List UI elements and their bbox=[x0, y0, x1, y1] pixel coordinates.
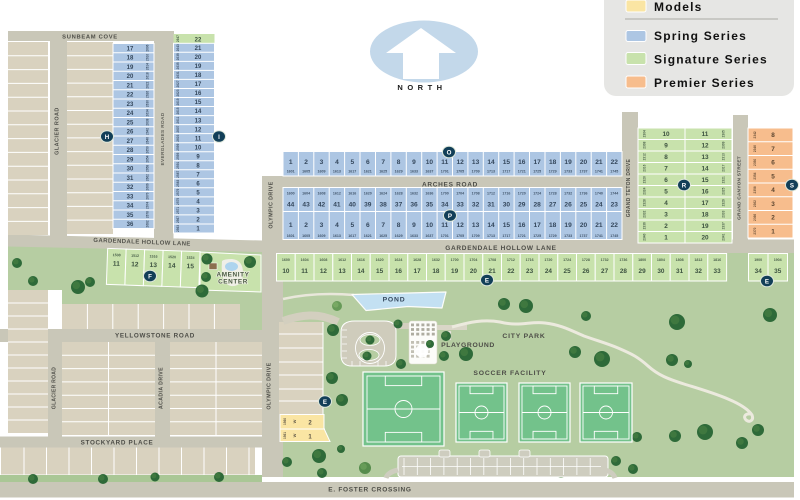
svg-text:1745: 1745 bbox=[610, 234, 618, 238]
svg-text:1713: 1713 bbox=[487, 234, 495, 238]
svg-text:2316: 2316 bbox=[643, 164, 647, 171]
svg-text:1800: 1800 bbox=[638, 258, 646, 262]
svg-text:1733: 1733 bbox=[564, 234, 572, 238]
svg-text:1720: 1720 bbox=[518, 192, 526, 196]
svg-text:10: 10 bbox=[195, 145, 202, 151]
svg-text:1708: 1708 bbox=[488, 258, 496, 262]
svg-text:1512: 1512 bbox=[131, 254, 139, 258]
svg-text:STOCKYARD PLACE: STOCKYARD PLACE bbox=[81, 440, 154, 447]
svg-text:1720: 1720 bbox=[544, 258, 552, 262]
svg-text:21: 21 bbox=[595, 222, 603, 229]
svg-text:OLYMPIC DRIVE: OLYMPIC DRIVE bbox=[267, 362, 273, 409]
svg-text:1609: 1609 bbox=[318, 234, 326, 238]
svg-text:1616: 1616 bbox=[357, 258, 365, 262]
svg-text:YELLOWSTONE ROAD: YELLOWSTONE ROAD bbox=[115, 333, 195, 340]
svg-text:Signature Series: Signature Series bbox=[654, 53, 768, 67]
svg-text:1508: 1508 bbox=[113, 253, 121, 257]
svg-text:14: 14 bbox=[701, 166, 709, 173]
svg-text:36: 36 bbox=[127, 222, 134, 228]
svg-text:2575: 2575 bbox=[176, 198, 180, 205]
svg-text:2366: 2366 bbox=[753, 214, 757, 221]
svg-text:1561: 1561 bbox=[283, 432, 287, 439]
svg-text:19: 19 bbox=[564, 222, 572, 229]
svg-text:20: 20 bbox=[470, 268, 478, 275]
svg-text:21: 21 bbox=[595, 159, 603, 166]
svg-text:14: 14 bbox=[168, 263, 176, 270]
svg-text:24: 24 bbox=[545, 268, 553, 275]
svg-text:1704: 1704 bbox=[456, 192, 464, 196]
svg-text:Models: Models bbox=[654, 0, 703, 14]
svg-text:34: 34 bbox=[127, 204, 134, 210]
svg-text:10: 10 bbox=[426, 222, 434, 229]
svg-text:1701: 1701 bbox=[441, 170, 449, 174]
svg-text:Premier Series: Premier Series bbox=[654, 76, 755, 90]
svg-text:1724: 1724 bbox=[563, 258, 571, 262]
svg-text:2304: 2304 bbox=[643, 130, 647, 137]
svg-text:POND: POND bbox=[383, 297, 406, 304]
svg-text:20: 20 bbox=[127, 74, 134, 80]
svg-text:12: 12 bbox=[457, 159, 465, 166]
svg-text:27: 27 bbox=[601, 268, 609, 275]
svg-text:1604: 1604 bbox=[301, 258, 309, 262]
svg-text:33: 33 bbox=[457, 202, 465, 209]
svg-text:2567: 2567 bbox=[176, 216, 180, 223]
svg-text:8: 8 bbox=[397, 159, 401, 166]
svg-text:2635: 2635 bbox=[176, 62, 180, 69]
svg-text:1816: 1816 bbox=[713, 258, 721, 262]
svg-text:1700: 1700 bbox=[451, 258, 459, 262]
svg-text:1609: 1609 bbox=[318, 170, 326, 174]
svg-text:2308: 2308 bbox=[643, 141, 647, 148]
svg-text:15: 15 bbox=[701, 177, 709, 184]
svg-text:2587: 2587 bbox=[176, 171, 180, 178]
svg-text:1636: 1636 bbox=[425, 192, 433, 196]
svg-text:24: 24 bbox=[127, 111, 134, 117]
svg-text:2595: 2595 bbox=[176, 152, 180, 159]
svg-text:1708: 1708 bbox=[472, 192, 480, 196]
svg-text:Spring Series: Spring Series bbox=[654, 29, 747, 43]
svg-text:40: 40 bbox=[349, 202, 357, 209]
svg-text:1733: 1733 bbox=[564, 170, 572, 174]
svg-text:1613: 1613 bbox=[333, 234, 341, 238]
svg-text:1612: 1612 bbox=[333, 192, 341, 196]
svg-text:2317: 2317 bbox=[722, 164, 726, 171]
svg-text:1629: 1629 bbox=[395, 170, 403, 174]
svg-text:7: 7 bbox=[381, 159, 385, 166]
svg-text:17: 17 bbox=[414, 268, 422, 275]
svg-text:SUNBEAM COVE: SUNBEAM COVE bbox=[62, 35, 118, 41]
svg-text:W: W bbox=[292, 433, 297, 437]
svg-text:1601: 1601 bbox=[287, 170, 295, 174]
svg-text:14: 14 bbox=[357, 268, 365, 275]
svg-text:2340: 2340 bbox=[643, 233, 647, 240]
svg-text:15: 15 bbox=[195, 100, 202, 106]
svg-text:23: 23 bbox=[127, 102, 134, 108]
svg-text:2333: 2333 bbox=[722, 210, 726, 217]
svg-text:2639: 2639 bbox=[176, 53, 180, 60]
svg-text:20: 20 bbox=[195, 55, 202, 61]
svg-text:1601: 1601 bbox=[287, 234, 295, 238]
svg-text:43: 43 bbox=[302, 202, 310, 209]
svg-text:1716: 1716 bbox=[502, 192, 510, 196]
svg-text:9: 9 bbox=[664, 143, 668, 150]
svg-text:2626: 2626 bbox=[146, 91, 150, 98]
svg-text:22: 22 bbox=[127, 93, 134, 99]
svg-text:1628: 1628 bbox=[395, 192, 403, 196]
svg-text:29: 29 bbox=[639, 268, 647, 275]
svg-text:P: P bbox=[448, 213, 452, 220]
svg-text:1804: 1804 bbox=[657, 258, 665, 262]
svg-text:2591: 2591 bbox=[176, 162, 180, 169]
svg-text:2658: 2658 bbox=[146, 165, 150, 172]
svg-text:1620: 1620 bbox=[364, 192, 372, 196]
svg-text:20: 20 bbox=[580, 222, 588, 229]
svg-text:24: 24 bbox=[595, 202, 603, 209]
svg-text:22: 22 bbox=[611, 159, 619, 166]
svg-text:18: 18 bbox=[701, 212, 709, 219]
svg-text:35: 35 bbox=[774, 268, 782, 275]
svg-text:S: S bbox=[790, 182, 794, 189]
svg-text:35: 35 bbox=[127, 213, 134, 219]
svg-text:18: 18 bbox=[195, 73, 202, 79]
svg-text:14: 14 bbox=[487, 222, 495, 229]
svg-text:35: 35 bbox=[426, 202, 434, 209]
svg-text:1613: 1613 bbox=[333, 170, 341, 174]
svg-text:29: 29 bbox=[127, 157, 134, 163]
svg-text:W: W bbox=[292, 419, 297, 423]
svg-text:2631: 2631 bbox=[176, 71, 180, 78]
svg-text:E. FOSTER CROSSING: E. FOSTER CROSSING bbox=[328, 487, 411, 494]
svg-text:34: 34 bbox=[755, 268, 763, 275]
svg-text:2614: 2614 bbox=[146, 63, 150, 70]
svg-text:1600: 1600 bbox=[287, 192, 295, 196]
svg-text:11: 11 bbox=[441, 222, 448, 229]
svg-text:1604: 1604 bbox=[302, 192, 310, 196]
svg-text:25: 25 bbox=[580, 202, 588, 209]
svg-text:2599: 2599 bbox=[176, 143, 180, 150]
svg-text:2328: 2328 bbox=[643, 199, 647, 206]
svg-text:CITY PARK: CITY PARK bbox=[502, 333, 545, 340]
svg-text:2630: 2630 bbox=[146, 100, 150, 107]
svg-text:29: 29 bbox=[518, 202, 526, 209]
svg-text:11: 11 bbox=[702, 131, 709, 138]
svg-text:31: 31 bbox=[676, 268, 684, 275]
svg-text:18: 18 bbox=[127, 56, 134, 62]
svg-text:27: 27 bbox=[549, 202, 557, 209]
svg-text:CENTER: CENTER bbox=[218, 279, 248, 286]
svg-text:1600: 1600 bbox=[282, 258, 290, 262]
svg-text:1712: 1712 bbox=[507, 258, 515, 262]
svg-text:1620: 1620 bbox=[376, 258, 384, 262]
svg-text:2324: 2324 bbox=[643, 187, 647, 194]
svg-text:1729: 1729 bbox=[549, 170, 557, 174]
svg-text:11: 11 bbox=[113, 261, 121, 268]
svg-text:2350: 2350 bbox=[753, 159, 757, 166]
svg-text:1724: 1724 bbox=[533, 192, 541, 196]
svg-text:7: 7 bbox=[664, 166, 668, 173]
svg-text:R: R bbox=[682, 182, 687, 189]
svg-text:13: 13 bbox=[701, 154, 709, 161]
svg-text:13: 13 bbox=[472, 222, 480, 229]
svg-text:3: 3 bbox=[320, 159, 324, 166]
svg-text:GRAND TETON DRIVE: GRAND TETON DRIVE bbox=[626, 158, 632, 217]
svg-text:18: 18 bbox=[549, 159, 557, 166]
svg-text:15: 15 bbox=[503, 222, 511, 229]
svg-text:31: 31 bbox=[487, 202, 495, 209]
svg-text:GLACIER ROAD: GLACIER ROAD bbox=[52, 367, 58, 409]
svg-text:2370: 2370 bbox=[753, 227, 757, 234]
svg-text:1625: 1625 bbox=[379, 234, 387, 238]
svg-text:15: 15 bbox=[186, 263, 194, 270]
svg-text:EVERGLADES ROAD: EVERGLADES ROAD bbox=[160, 112, 166, 165]
svg-text:19: 19 bbox=[701, 223, 709, 230]
svg-text:1736: 1736 bbox=[619, 258, 627, 262]
svg-text:1520: 1520 bbox=[168, 255, 176, 259]
svg-text:1704: 1704 bbox=[469, 258, 477, 262]
svg-text:16: 16 bbox=[395, 268, 403, 275]
svg-text:3: 3 bbox=[771, 201, 775, 208]
svg-text:2618: 2618 bbox=[146, 72, 150, 79]
svg-text:15: 15 bbox=[376, 268, 384, 275]
svg-text:10: 10 bbox=[426, 159, 434, 166]
svg-text:17: 17 bbox=[534, 222, 542, 229]
svg-text:6: 6 bbox=[771, 160, 775, 167]
svg-text:E: E bbox=[323, 399, 327, 406]
svg-text:H: H bbox=[105, 134, 110, 141]
svg-text:AMENITY: AMENITY bbox=[217, 272, 250, 279]
svg-text:2313: 2313 bbox=[722, 153, 726, 160]
svg-text:2329: 2329 bbox=[722, 199, 726, 206]
svg-text:21: 21 bbox=[489, 268, 497, 275]
svg-text:37: 37 bbox=[395, 202, 403, 209]
svg-text:27: 27 bbox=[127, 139, 134, 145]
svg-text:1524: 1524 bbox=[187, 256, 195, 260]
svg-text:31: 31 bbox=[127, 176, 134, 182]
svg-text:1740: 1740 bbox=[595, 192, 603, 196]
svg-text:1900: 1900 bbox=[754, 258, 762, 262]
svg-text:4: 4 bbox=[335, 222, 339, 229]
svg-text:1605: 1605 bbox=[302, 234, 310, 238]
svg-text:1560: 1560 bbox=[283, 418, 287, 425]
svg-text:7: 7 bbox=[381, 222, 385, 229]
svg-text:2642: 2642 bbox=[146, 128, 150, 135]
svg-text:23: 23 bbox=[611, 202, 619, 209]
svg-text:2332: 2332 bbox=[643, 210, 647, 217]
svg-text:1: 1 bbox=[289, 222, 293, 229]
svg-text:2606: 2606 bbox=[146, 44, 150, 51]
svg-text:2627: 2627 bbox=[176, 80, 180, 87]
svg-text:7: 7 bbox=[771, 146, 775, 153]
svg-text:8: 8 bbox=[771, 132, 775, 139]
svg-text:14: 14 bbox=[195, 109, 202, 115]
svg-text:30: 30 bbox=[503, 202, 511, 209]
svg-text:19: 19 bbox=[127, 65, 134, 71]
svg-text:3: 3 bbox=[320, 222, 324, 229]
svg-text:2611: 2611 bbox=[176, 116, 180, 123]
svg-text:12: 12 bbox=[195, 127, 202, 133]
svg-text:2354: 2354 bbox=[753, 172, 757, 179]
svg-text:32: 32 bbox=[127, 185, 134, 191]
svg-text:22: 22 bbox=[195, 38, 202, 44]
svg-text:22: 22 bbox=[507, 268, 515, 275]
svg-text:8: 8 bbox=[397, 222, 401, 229]
svg-text:1705: 1705 bbox=[456, 170, 464, 174]
svg-text:21: 21 bbox=[195, 46, 202, 52]
svg-text:1632: 1632 bbox=[410, 192, 418, 196]
svg-text:1736: 1736 bbox=[580, 192, 588, 196]
svg-text:2305: 2305 bbox=[722, 130, 726, 137]
svg-text:2647: 2647 bbox=[176, 35, 180, 42]
svg-text:2583: 2583 bbox=[176, 180, 180, 187]
svg-text:6: 6 bbox=[366, 222, 370, 229]
svg-text:33: 33 bbox=[127, 194, 134, 200]
svg-text:5: 5 bbox=[350, 222, 354, 229]
svg-text:1737: 1737 bbox=[580, 234, 588, 238]
svg-text:1904: 1904 bbox=[774, 258, 782, 262]
svg-text:1617: 1617 bbox=[348, 170, 356, 174]
svg-text:2615: 2615 bbox=[176, 107, 180, 114]
svg-text:1608: 1608 bbox=[319, 258, 327, 262]
svg-text:1737: 1737 bbox=[580, 170, 588, 174]
svg-text:32: 32 bbox=[695, 268, 703, 275]
svg-text:30: 30 bbox=[127, 167, 134, 173]
svg-text:I: I bbox=[218, 134, 220, 141]
svg-text:1725: 1725 bbox=[533, 170, 541, 174]
svg-text:GARDENDALE HOLLOW LANE: GARDENDALE HOLLOW LANE bbox=[445, 245, 556, 252]
svg-text:19: 19 bbox=[195, 64, 202, 70]
svg-text:1605: 1605 bbox=[302, 170, 310, 174]
svg-text:17: 17 bbox=[534, 159, 542, 166]
svg-text:17: 17 bbox=[127, 46, 134, 52]
svg-text:2634: 2634 bbox=[146, 109, 150, 116]
svg-text:28: 28 bbox=[620, 268, 628, 275]
svg-text:1721: 1721 bbox=[518, 170, 526, 174]
svg-text:26: 26 bbox=[127, 130, 134, 136]
svg-text:1632: 1632 bbox=[432, 258, 440, 262]
svg-text:2622: 2622 bbox=[146, 81, 150, 88]
svg-text:1637: 1637 bbox=[425, 170, 433, 174]
svg-text:2: 2 bbox=[304, 159, 308, 166]
svg-text:22: 22 bbox=[611, 222, 619, 229]
svg-text:13: 13 bbox=[339, 268, 347, 275]
svg-text:1808: 1808 bbox=[676, 258, 684, 262]
svg-text:1728: 1728 bbox=[549, 192, 557, 196]
svg-text:PLAYGROUND: PLAYGROUND bbox=[441, 342, 495, 349]
svg-text:26: 26 bbox=[582, 268, 590, 275]
svg-text:1732: 1732 bbox=[601, 258, 609, 262]
svg-text:1725: 1725 bbox=[533, 234, 541, 238]
svg-text:2650: 2650 bbox=[146, 146, 150, 153]
svg-text:1625: 1625 bbox=[379, 170, 387, 174]
svg-text:1741: 1741 bbox=[595, 170, 603, 174]
svg-text:2662: 2662 bbox=[146, 174, 150, 181]
svg-text:1716: 1716 bbox=[526, 258, 534, 262]
svg-text:O: O bbox=[447, 149, 452, 156]
svg-text:2: 2 bbox=[664, 223, 668, 230]
svg-text:39: 39 bbox=[364, 202, 372, 209]
svg-text:12: 12 bbox=[131, 261, 139, 268]
svg-text:21: 21 bbox=[127, 83, 134, 89]
svg-text:1717: 1717 bbox=[502, 234, 510, 238]
svg-text:18: 18 bbox=[549, 222, 557, 229]
svg-text:E: E bbox=[485, 277, 489, 284]
svg-text:4: 4 bbox=[664, 200, 668, 207]
svg-text:1621: 1621 bbox=[364, 234, 372, 238]
svg-text:2623: 2623 bbox=[176, 89, 180, 96]
svg-text:44: 44 bbox=[287, 202, 295, 209]
svg-text:4: 4 bbox=[335, 159, 339, 166]
svg-text:2603: 2603 bbox=[176, 134, 180, 141]
svg-text:2619: 2619 bbox=[176, 98, 180, 105]
svg-text:2337: 2337 bbox=[722, 222, 726, 229]
svg-text:GRAND CANYON STREET: GRAND CANYON STREET bbox=[737, 156, 743, 220]
svg-text:6: 6 bbox=[366, 159, 370, 166]
svg-text:1: 1 bbox=[771, 228, 775, 235]
svg-text:1629: 1629 bbox=[395, 234, 403, 238]
svg-text:1717: 1717 bbox=[502, 170, 510, 174]
svg-text:SOCCER FACILITY: SOCCER FACILITY bbox=[473, 370, 546, 377]
svg-text:2336: 2336 bbox=[643, 222, 647, 229]
svg-text:1701: 1701 bbox=[441, 234, 449, 238]
svg-text:1721: 1721 bbox=[518, 234, 526, 238]
svg-text:2309: 2309 bbox=[722, 141, 726, 148]
svg-text:NORTH: NORTH bbox=[397, 83, 446, 92]
svg-text:1709: 1709 bbox=[472, 234, 480, 238]
svg-text:20: 20 bbox=[580, 159, 588, 166]
svg-text:12: 12 bbox=[701, 143, 709, 150]
svg-text:2607: 2607 bbox=[176, 125, 180, 132]
svg-text:13: 13 bbox=[472, 159, 480, 166]
svg-text:2654: 2654 bbox=[146, 155, 150, 162]
svg-text:1709: 1709 bbox=[472, 170, 480, 174]
svg-text:1617: 1617 bbox=[348, 234, 356, 238]
svg-text:5: 5 bbox=[350, 159, 354, 166]
svg-text:1: 1 bbox=[289, 159, 293, 166]
svg-text:1624: 1624 bbox=[379, 192, 387, 196]
svg-text:16: 16 bbox=[701, 189, 709, 196]
svg-text:E: E bbox=[765, 278, 769, 285]
svg-text:2682: 2682 bbox=[146, 220, 150, 227]
svg-text:2362: 2362 bbox=[753, 200, 757, 207]
svg-text:8: 8 bbox=[664, 154, 668, 161]
svg-text:1729: 1729 bbox=[549, 234, 557, 238]
svg-text:1616: 1616 bbox=[348, 192, 356, 196]
svg-text:F: F bbox=[148, 273, 152, 280]
svg-text:2643: 2643 bbox=[176, 44, 180, 51]
svg-text:1633: 1633 bbox=[410, 234, 418, 238]
svg-text:OLYMPIC DRIVE: OLYMPIC DRIVE bbox=[269, 181, 275, 228]
svg-text:2346: 2346 bbox=[753, 145, 757, 152]
svg-text:2610: 2610 bbox=[146, 54, 150, 61]
svg-text:1700: 1700 bbox=[441, 192, 449, 196]
svg-text:32: 32 bbox=[472, 202, 480, 209]
svg-text:1728: 1728 bbox=[582, 258, 590, 262]
svg-text:2638: 2638 bbox=[146, 118, 150, 125]
svg-text:GLACIER ROAD: GLACIER ROAD bbox=[55, 107, 61, 155]
svg-text:6: 6 bbox=[664, 177, 668, 184]
svg-text:1744: 1744 bbox=[610, 192, 618, 196]
svg-text:11: 11 bbox=[441, 159, 448, 166]
svg-text:2358: 2358 bbox=[753, 186, 757, 193]
svg-text:1712: 1712 bbox=[487, 192, 495, 196]
svg-text:9: 9 bbox=[412, 159, 416, 166]
svg-text:19: 19 bbox=[564, 159, 572, 166]
svg-text:2670: 2670 bbox=[146, 192, 150, 199]
svg-text:12: 12 bbox=[457, 222, 465, 229]
svg-text:1624: 1624 bbox=[394, 258, 402, 262]
svg-text:30: 30 bbox=[657, 268, 665, 275]
svg-text:5: 5 bbox=[664, 189, 668, 196]
